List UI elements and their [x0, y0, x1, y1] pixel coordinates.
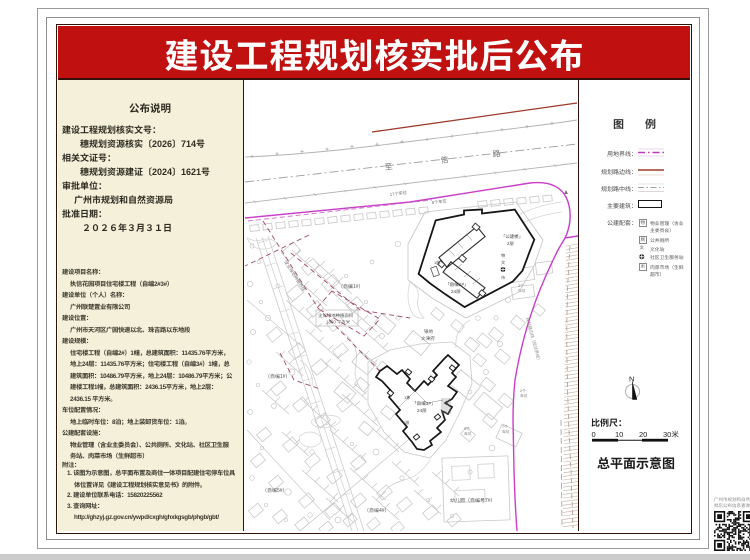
svg-text:车位: 车位	[464, 431, 472, 437]
svg-text:1栋: 1栋	[404, 395, 410, 401]
svg-text:（自编1#）: （自编1#）	[338, 283, 364, 290]
svg-text:「公建楼」: 「公建楼」	[501, 234, 523, 240]
svg-text:1360 平方米: 1360 平方米	[326, 320, 351, 326]
svg-text:银地: 银地	[424, 329, 434, 335]
svg-text:车位: 车位	[520, 393, 528, 399]
svg-text:车位: 车位	[502, 429, 510, 435]
svg-text:2层: 2层	[507, 241, 514, 247]
svg-text:（自编1#）: （自编1#）	[265, 373, 291, 380]
svg-text:「自编3#」: 「自编3#」	[412, 401, 436, 407]
svg-text:物: 物	[501, 253, 505, 259]
svg-text:路: 路	[492, 148, 501, 160]
svg-text:（自编4#）: （自编4#）	[364, 507, 390, 514]
svg-text:至: 至	[384, 161, 393, 173]
svg-text:「自编2#」: 「自编2#」	[445, 282, 469, 288]
svg-text:文津府: 文津府	[421, 336, 435, 342]
svg-text:市: 市	[501, 275, 505, 281]
svg-text:24层: 24层	[417, 408, 427, 414]
svg-text:24层: 24层	[451, 289, 461, 295]
svg-text:企业绿地种植面积: 企业绿地种植面积	[318, 313, 354, 319]
svg-text:信: 信	[440, 154, 449, 166]
svg-text:1层: 1层	[434, 260, 440, 266]
svg-text:N: N	[629, 375, 634, 384]
svg-text:幼儿园（自编号7#）: 幼儿园（自编号7#）	[450, 497, 496, 504]
svg-text:（自编5#）: （自编5#）	[262, 487, 288, 494]
svg-text:1层: 1层	[403, 420, 409, 426]
